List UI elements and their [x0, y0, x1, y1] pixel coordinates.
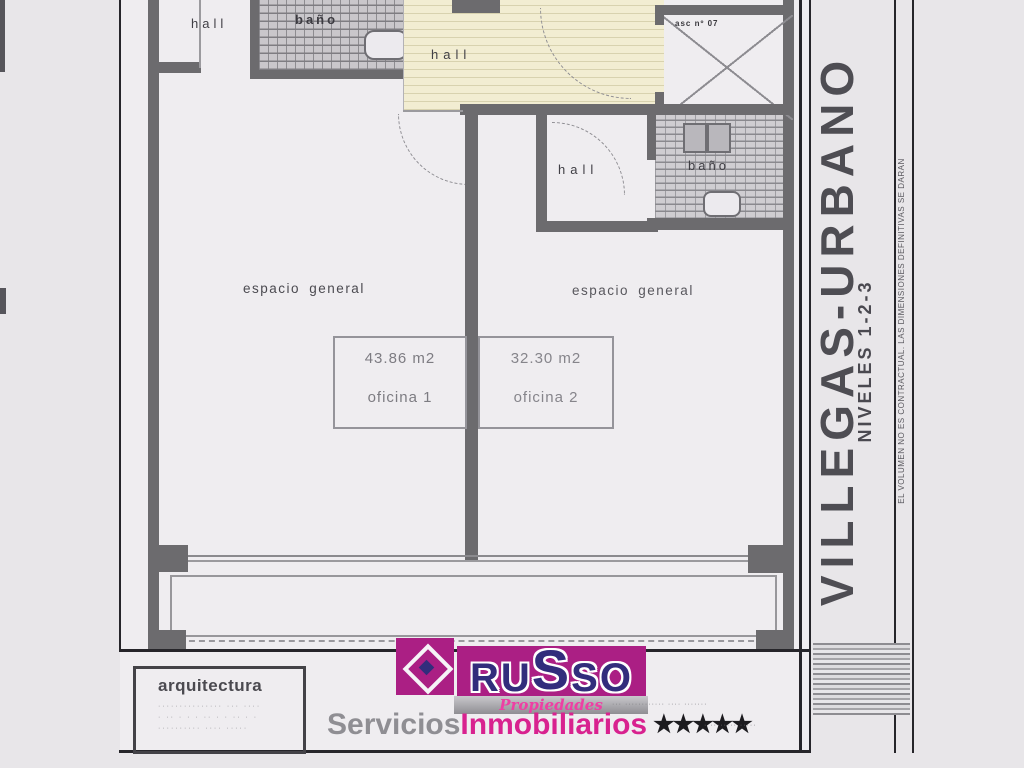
window-line [186, 555, 752, 557]
window-line [186, 560, 752, 562]
wall-stub-top-center [452, 0, 500, 13]
frame-line-right-3 [894, 0, 896, 753]
wall-hall-mid-bottom [536, 221, 658, 232]
wall-bath-mid-bottom [647, 218, 794, 230]
wall-under-hall [460, 104, 794, 115]
toilet-icon [703, 191, 741, 217]
balcony-post-right [748, 545, 794, 573]
russo-monogram-icon [396, 638, 454, 695]
elevator-shaft: asc nº 07 [661, 5, 793, 120]
levels-label: NIVELES 1-2-3 [855, 236, 877, 486]
room-label-space-right: espacio general [572, 283, 694, 298]
russo-brand-text: RUSSO [470, 639, 633, 704]
room-label-bath-top: baño [295, 12, 338, 27]
room-label-hall-mid: hall [558, 162, 598, 177]
footer-fineprint-side: · ········ ····· [704, 722, 757, 729]
room-label-hall-main: hall [431, 47, 471, 62]
elevator-post-top [655, 5, 664, 25]
scan-smudge [0, 0, 5, 72]
wall-bath-mid-left [647, 115, 656, 160]
disclaimer-text: EL VOLUMEN NO ES CONTRACTUAL. LAS DIMENS… [897, 11, 909, 651]
corridor-line [199, 0, 201, 68]
sink-icon [683, 123, 707, 153]
wall-central-divider [465, 108, 478, 560]
office-2-area: 32.30 m2 [480, 350, 612, 367]
services-gray-text: Servicios [327, 708, 460, 742]
office-2-name: oficina 2 [480, 389, 612, 406]
balcony-post-bottom-right [756, 630, 794, 649]
scan-smudge [0, 288, 6, 314]
russo-wordmark: RUSSO [457, 646, 646, 696]
architecture-stamp: arquitectura ··············· ··· ···· · … [133, 666, 306, 754]
room-label-space-left: espacio general [243, 281, 365, 296]
office-1-area: 43.86 m2 [335, 350, 465, 367]
services-line: ServiciosInmobiliarios ★★★★★ [327, 708, 751, 742]
door-gap-line [403, 110, 463, 112]
wall-stub-top-left [148, 62, 201, 73]
wall-hall-mid-left [536, 112, 547, 228]
office-1-box: 43.86 m2 oficina 1 [333, 336, 467, 429]
hatch-block [813, 643, 910, 715]
frame-line-right-4 [912, 0, 914, 753]
room-label-bath-mid: baño [688, 158, 729, 173]
architecture-title: arquitectura [158, 676, 262, 696]
architecture-fineprint: ·········· ···· ····· [158, 723, 248, 734]
office-2-box: 32.30 m2 oficina 2 [478, 336, 614, 429]
architecture-fineprint: ··············· ··· ···· [158, 701, 261, 712]
architecture-fineprint: · ·· · · · ·· · · ·· · · [158, 712, 258, 723]
elevator-label: asc nº 07 [675, 19, 719, 28]
toilet-icon [364, 30, 408, 60]
services-pink-text: Inmobiliarios [460, 708, 647, 742]
balcony-post-bottom-left [148, 630, 186, 649]
frame-line-right-1 [799, 0, 802, 753]
footer-fineprint-top: ··· ············ ···· ······· [612, 701, 707, 708]
office-1-name: oficina 1 [335, 389, 465, 406]
sink-icon [707, 123, 731, 153]
room-label-hall-top-left: hall [191, 16, 227, 31]
frame-line-left [119, 0, 121, 652]
balcony-post-left [148, 545, 188, 572]
